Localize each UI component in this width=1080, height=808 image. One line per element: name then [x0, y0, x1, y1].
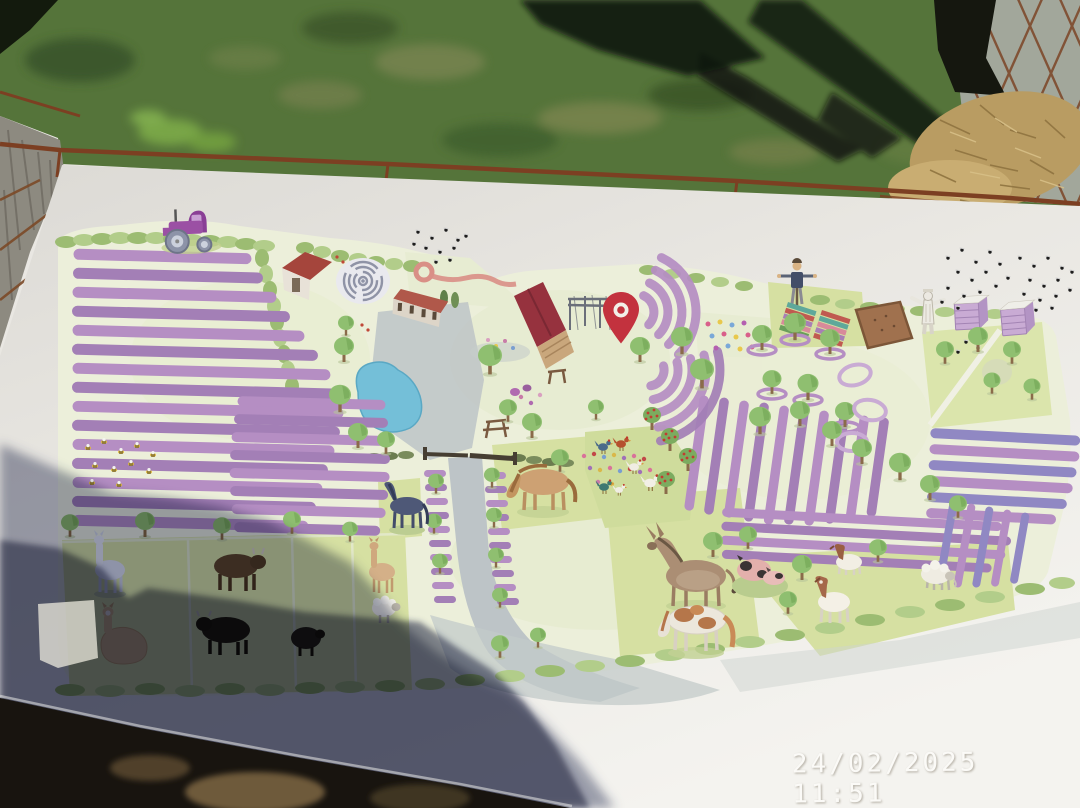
- camera-timestamp: 24/02/2025 11:51: [792, 747, 1073, 808]
- photo: 24/02/2025 11:51: [0, 0, 1080, 808]
- light-gap: [38, 600, 98, 668]
- photo-canvas: [0, 0, 1080, 808]
